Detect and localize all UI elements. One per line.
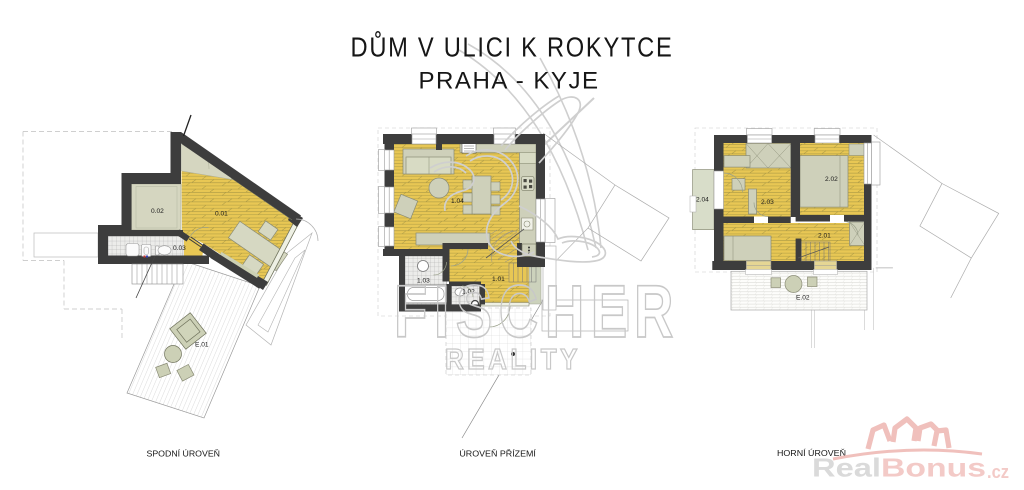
svg-text:FISCHER: FISCHER xyxy=(394,270,680,353)
svg-text:Real: Real xyxy=(812,453,881,483)
svg-text:0.03: 0.03 xyxy=(173,245,186,252)
svg-text:.cz: .cz xyxy=(987,462,1009,482)
svg-text:SPODNÍ ÚROVEŇ: SPODNÍ ÚROVEŇ xyxy=(147,449,221,459)
svg-text:E.02: E.02 xyxy=(796,295,810,302)
svg-text:PRAHA - KYJE: PRAHA - KYJE xyxy=(419,68,600,95)
svg-text:E.01: E.01 xyxy=(195,342,209,349)
svg-text:2.01: 2.01 xyxy=(818,233,831,240)
svg-text:0.02: 0.02 xyxy=(151,208,164,215)
svg-text:ÚROVEŇ PŘÍZEMÍ: ÚROVEŇ PŘÍZEMÍ xyxy=(459,449,536,459)
svg-text:2.02: 2.02 xyxy=(825,176,838,183)
svg-text:DŮM V ULICI K ROKYTCE: DŮM V ULICI K ROKYTCE xyxy=(351,31,674,63)
svg-text:2.04: 2.04 xyxy=(696,197,709,204)
svg-text:0.01: 0.01 xyxy=(215,211,228,218)
svg-text:Bonus: Bonus xyxy=(881,453,986,483)
svg-text:REALITY: REALITY xyxy=(445,344,581,376)
svg-text:2.03: 2.03 xyxy=(761,199,774,206)
svg-text:1.04: 1.04 xyxy=(451,198,464,205)
